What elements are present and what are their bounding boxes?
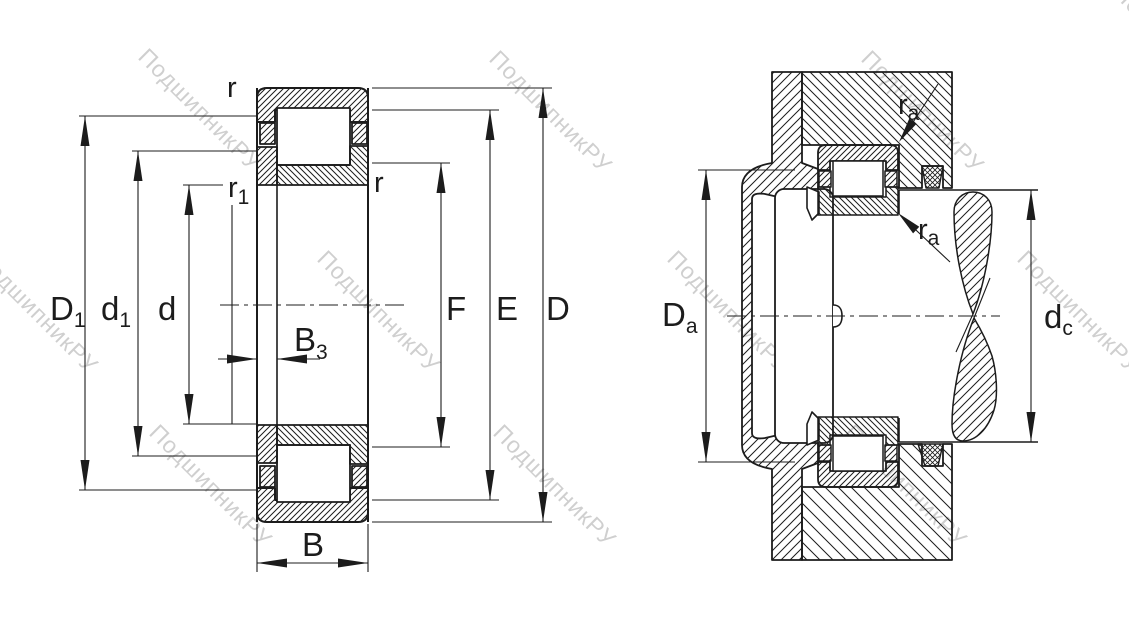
cage	[885, 445, 897, 461]
cage	[352, 123, 367, 144]
watermark: ПодшипникРУ	[1108, 0, 1129, 112]
label-B3: B3	[294, 321, 328, 364]
roller	[277, 108, 350, 165]
label-Da: Da	[662, 296, 698, 338]
cage	[260, 123, 275, 144]
watermark: ПодшипникРУ	[484, 45, 617, 178]
roller	[277, 445, 350, 502]
watermark: ПодшипникРУ	[488, 419, 621, 552]
watermark: ПодшипникРУ	[133, 43, 266, 176]
label-r-top: r	[227, 72, 237, 104]
cage	[885, 171, 897, 187]
cage	[819, 171, 831, 187]
rib-ring	[257, 147, 277, 185]
cage	[260, 466, 275, 487]
label-r-inner: r	[374, 167, 384, 199]
label-r1: r1	[228, 172, 249, 209]
rib-ring	[257, 425, 277, 463]
drawing-canvas: ПодшипникРУ ПодшипникРУ ПодшипникРУ Подш…	[0, 0, 1129, 632]
label-ra-bottom: ra	[918, 214, 940, 250]
label-d1: d1	[101, 290, 131, 332]
label-D: D	[546, 290, 570, 327]
mounted-bearing-top	[818, 145, 898, 215]
label-B: B	[302, 526, 324, 563]
watermark-layer: ПодшипникРУ ПодшипникРУ ПодшипникРУ Подш…	[0, 0, 1129, 552]
bearing-bottom-section	[257, 425, 368, 522]
left-view-bearing-section: D1 d1 d B3 B F E D r r1 r	[50, 72, 570, 572]
break-teardrop-bottom	[952, 318, 996, 441]
cage	[819, 445, 831, 461]
label-F: F	[446, 290, 466, 327]
label-E: E	[496, 290, 518, 327]
seal-top	[922, 166, 943, 188]
watermark: ПодшипникРУ	[312, 245, 445, 378]
label-D1: D1	[50, 290, 86, 332]
watermark: ПодшипникРУ	[1012, 245, 1129, 378]
bearing-top-section	[257, 88, 368, 185]
cage	[352, 466, 367, 487]
break-teardrop-top	[954, 192, 992, 314]
roller	[833, 161, 883, 196]
mounted-bearing-bottom	[818, 417, 898, 487]
bearing-drawing: ПодшипникРУ ПодшипникРУ ПодшипникРУ Подш…	[0, 0, 1129, 632]
label-d: d	[158, 290, 176, 327]
roller	[833, 436, 883, 471]
